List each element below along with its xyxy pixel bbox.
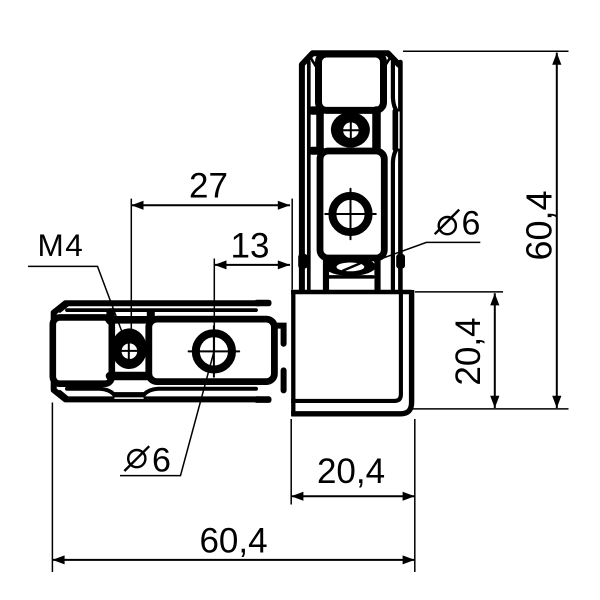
svg-text:13: 13: [231, 226, 270, 265]
svg-text:20,4: 20,4: [317, 452, 385, 491]
svg-text:6: 6: [462, 204, 481, 242]
svg-text:M4: M4: [38, 227, 85, 263]
svg-text:6: 6: [152, 442, 171, 480]
svg-text:27: 27: [189, 167, 228, 206]
svg-text:60,4: 60,4: [199, 522, 267, 561]
svg-text:20,4: 20,4: [449, 317, 488, 385]
svg-text:60,4: 60,4: [519, 190, 560, 260]
